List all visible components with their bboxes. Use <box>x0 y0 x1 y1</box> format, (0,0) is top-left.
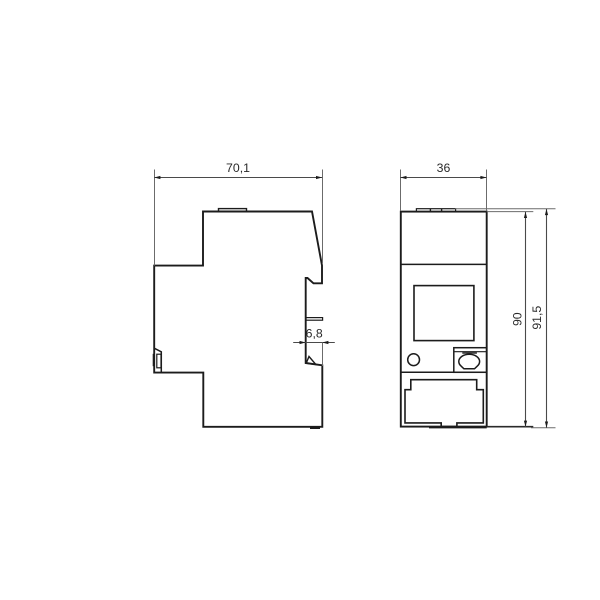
svg-text:36: 36 <box>437 161 451 175</box>
svg-text:70,1: 70,1 <box>226 161 250 175</box>
svg-text:91,5: 91,5 <box>530 306 544 330</box>
svg-text:90: 90 <box>511 312 525 326</box>
svg-text:6,8: 6,8 <box>306 327 323 341</box>
